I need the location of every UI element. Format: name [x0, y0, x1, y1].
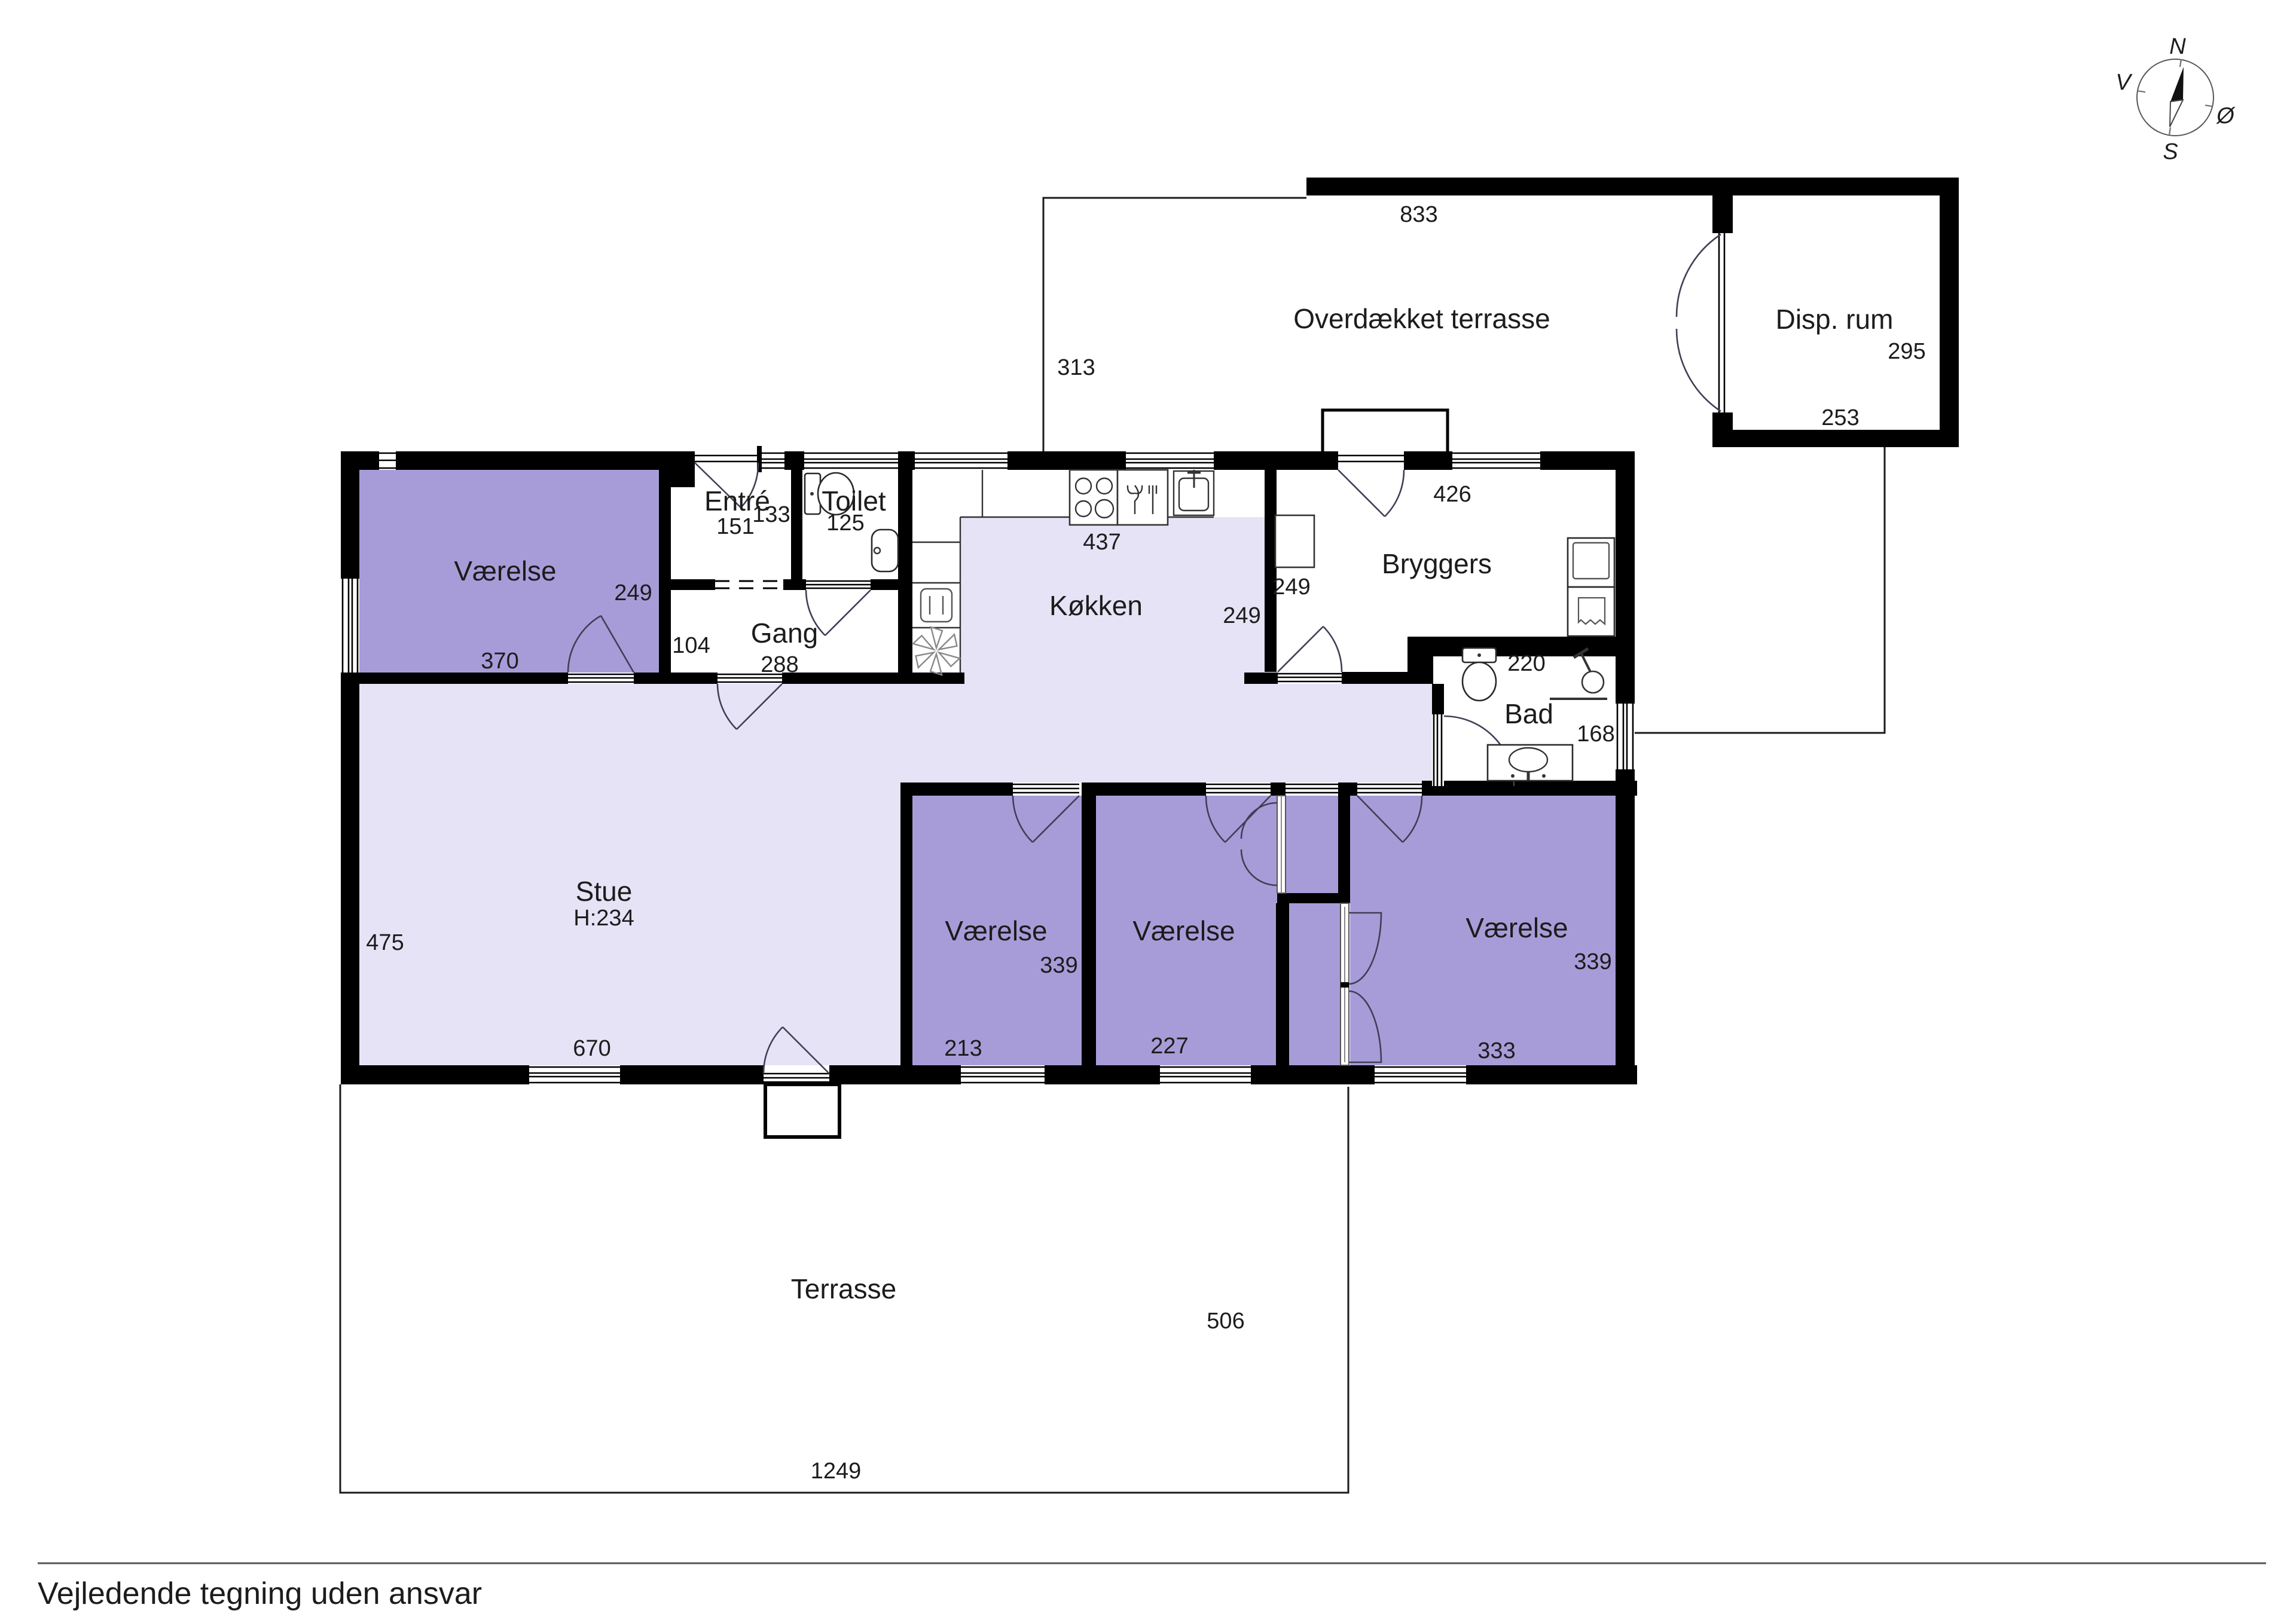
svg-text:104: 104	[672, 633, 710, 658]
svg-text:Disp. rum: Disp. rum	[1776, 304, 1894, 335]
svg-text:Bad: Bad	[1504, 698, 1553, 729]
svg-text:313: 313	[1057, 355, 1095, 380]
svg-text:213: 213	[944, 1036, 982, 1061]
svg-text:249: 249	[614, 580, 652, 606]
svg-text:Vejledende tegning uden ansvar: Vejledende tegning uden ansvar	[38, 1576, 482, 1611]
svg-text:Køkken: Køkken	[1049, 590, 1143, 621]
svg-text:151: 151	[716, 514, 754, 539]
svg-text:125: 125	[826, 511, 864, 536]
svg-text:S: S	[2163, 139, 2178, 164]
svg-text:Ø: Ø	[2215, 103, 2236, 129]
svg-text:N: N	[2169, 34, 2186, 59]
svg-text:333: 333	[1477, 1038, 1515, 1063]
svg-text:H:234: H:234	[573, 906, 634, 931]
svg-text:370: 370	[481, 649, 518, 674]
svg-text:437: 437	[1083, 530, 1120, 555]
svg-text:295: 295	[1888, 339, 1925, 364]
svg-text:133: 133	[752, 502, 790, 527]
svg-text:833: 833	[1400, 202, 1437, 227]
svg-text:670: 670	[573, 1036, 610, 1061]
svg-text:475: 475	[366, 930, 404, 955]
svg-text:339: 339	[1040, 953, 1077, 978]
svg-text:V: V	[2115, 70, 2133, 95]
svg-text:Gang: Gang	[751, 618, 819, 649]
svg-text:288: 288	[761, 652, 798, 677]
svg-text:506: 506	[1207, 1309, 1244, 1334]
svg-text:Værelse: Værelse	[1465, 912, 1568, 943]
svg-text:Bryggers: Bryggers	[1382, 548, 1492, 579]
svg-text:339: 339	[1574, 949, 1611, 974]
svg-text:Værelse: Værelse	[945, 915, 1047, 946]
svg-text:1249: 1249	[811, 1459, 862, 1484]
svg-text:168: 168	[1577, 722, 1614, 747]
svg-text:Overdækket terrasse: Overdækket terrasse	[1293, 303, 1550, 334]
svg-text:Værelse: Værelse	[1132, 915, 1235, 946]
svg-text:249: 249	[1272, 574, 1310, 600]
svg-text:426: 426	[1433, 482, 1471, 507]
svg-text:249: 249	[1223, 603, 1260, 628]
svg-text:Terrasse: Terrasse	[791, 1273, 896, 1304]
svg-text:220: 220	[1507, 651, 1545, 676]
svg-text:253: 253	[1821, 405, 1859, 430]
svg-text:Værelse: Værelse	[454, 555, 556, 586]
svg-text:Stue: Stue	[576, 876, 633, 907]
svg-text:227: 227	[1150, 1034, 1188, 1059]
